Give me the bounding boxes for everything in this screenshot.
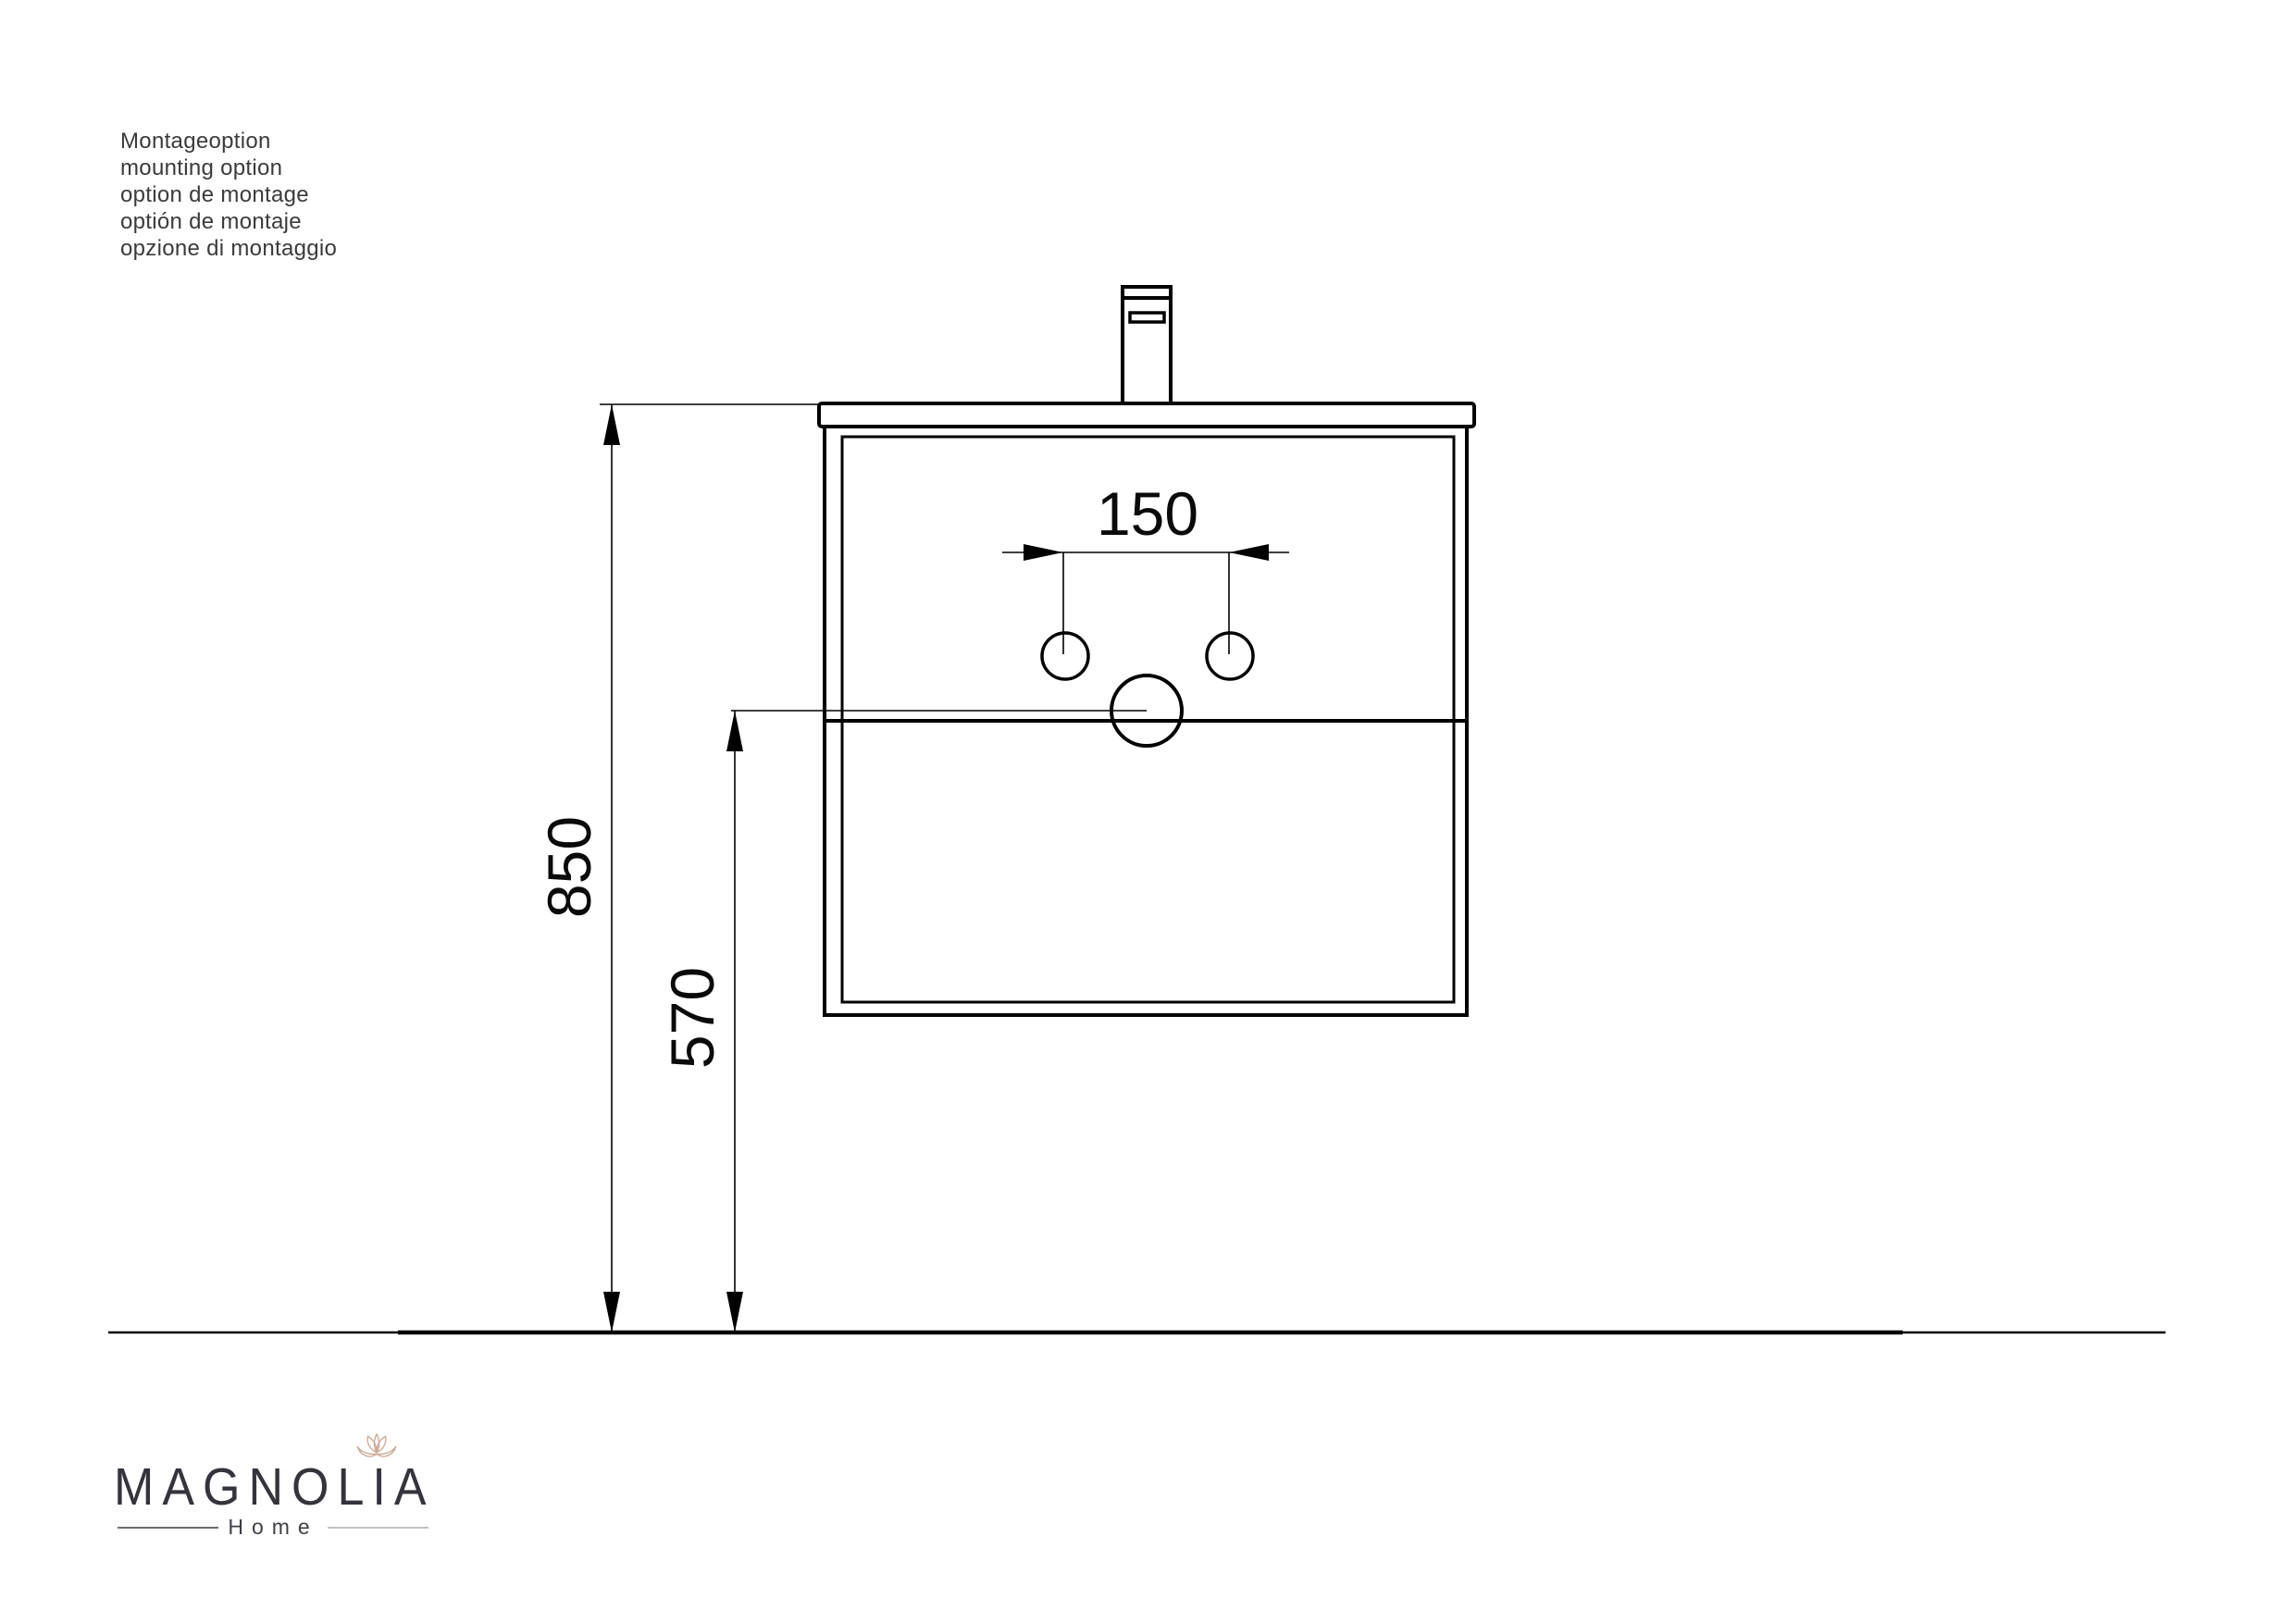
countertop xyxy=(819,403,1474,427)
dim-570-arrow-bottom xyxy=(726,1292,743,1332)
brand-subtitle-row: Home xyxy=(118,1515,428,1540)
brand-name: MAGNOLIA xyxy=(114,1457,435,1518)
dim-850-arrow-bottom xyxy=(603,1292,620,1332)
vanity-mounting-drawing: 150 850 570 xyxy=(0,0,2296,1623)
subtitle-rule-left xyxy=(118,1527,218,1529)
dim-570-arrow-top xyxy=(726,711,743,751)
subtitle-rule-right xyxy=(328,1527,428,1529)
faucet-spout-slot xyxy=(1130,313,1164,322)
dim-570-label: 570 xyxy=(658,967,726,1069)
page: Montageoption mounting option option de … xyxy=(0,0,2296,1623)
brand-subtitle: Home xyxy=(218,1515,327,1540)
faucet-body xyxy=(1123,287,1171,405)
dim-150-label: 150 xyxy=(1097,479,1198,548)
dim-850-label: 850 xyxy=(535,816,603,918)
dim-850-arrow-top xyxy=(603,404,620,445)
